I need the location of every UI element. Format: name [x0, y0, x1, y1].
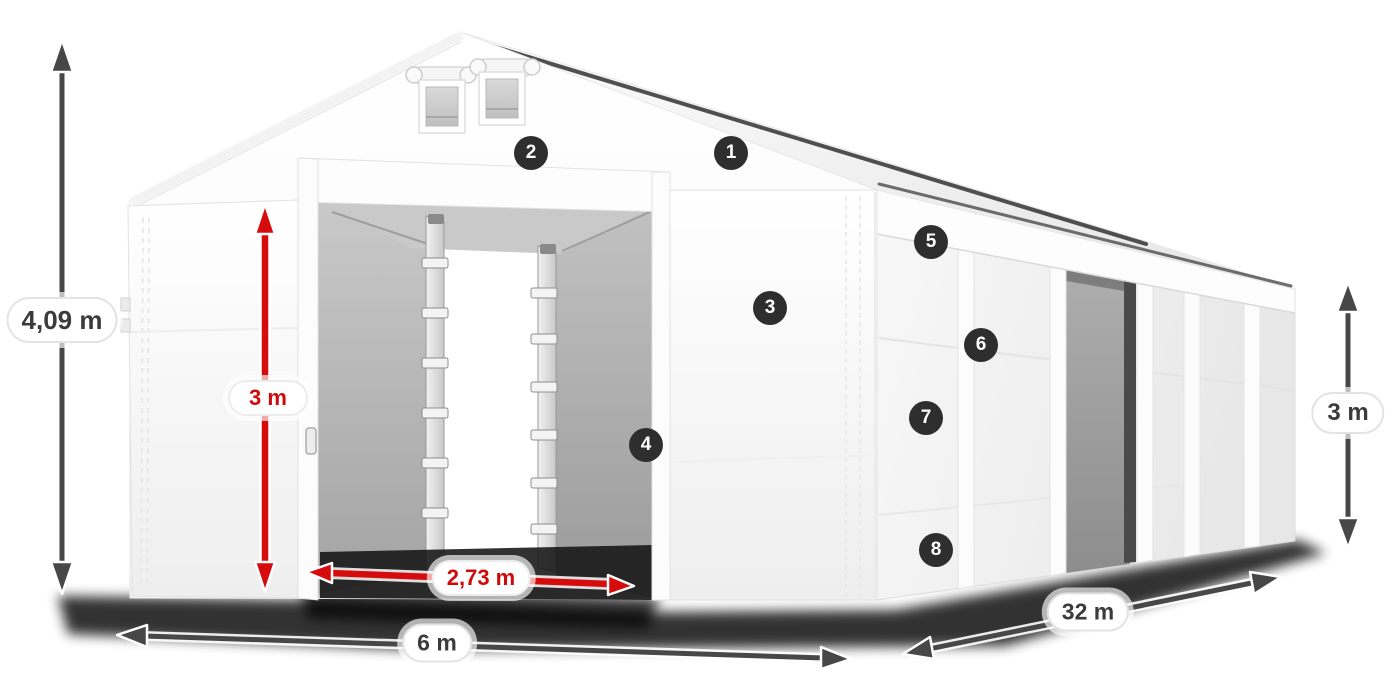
- door-handle: [306, 428, 316, 454]
- feature-badge-2: 2: [514, 136, 548, 170]
- feature-badge-4: 4: [629, 428, 663, 462]
- feature-badge-7: 7: [909, 401, 943, 435]
- dimension-label-total-height: 4,09 m: [7, 297, 118, 343]
- dimension-label-inner-height: 3 m: [228, 380, 308, 416]
- tent-illustration: [0, 0, 1400, 700]
- interior-left-door-leaf: [318, 198, 432, 594]
- dimension-label-door-width: 2,73 m: [432, 560, 531, 596]
- dimension-label-side-height: 3 m: [1311, 392, 1384, 434]
- feature-badge-1: 1: [714, 136, 748, 170]
- front-right-wall: [670, 190, 877, 600]
- feature-badge-3: 3: [753, 291, 787, 325]
- interior-door-post-left: [422, 214, 448, 574]
- dimension-label-width: 6 m: [402, 624, 472, 663]
- side-door-pole: [1124, 279, 1136, 563]
- feature-badge-6: 6: [964, 328, 998, 362]
- tent-dimension-diagram: 1 2 3 4 5 6 7 8 4,09 m 3 m 2,73 m 6 m 32…: [0, 0, 1400, 700]
- interior-right-door-leaf: [556, 208, 652, 598]
- dimension-label-length: 32 m: [1047, 593, 1129, 632]
- feature-badge-8: 8: [919, 533, 953, 567]
- front-door-interior: [318, 196, 652, 600]
- side-door-opening: [1066, 268, 1130, 573]
- feature-badge-5: 5: [914, 225, 948, 259]
